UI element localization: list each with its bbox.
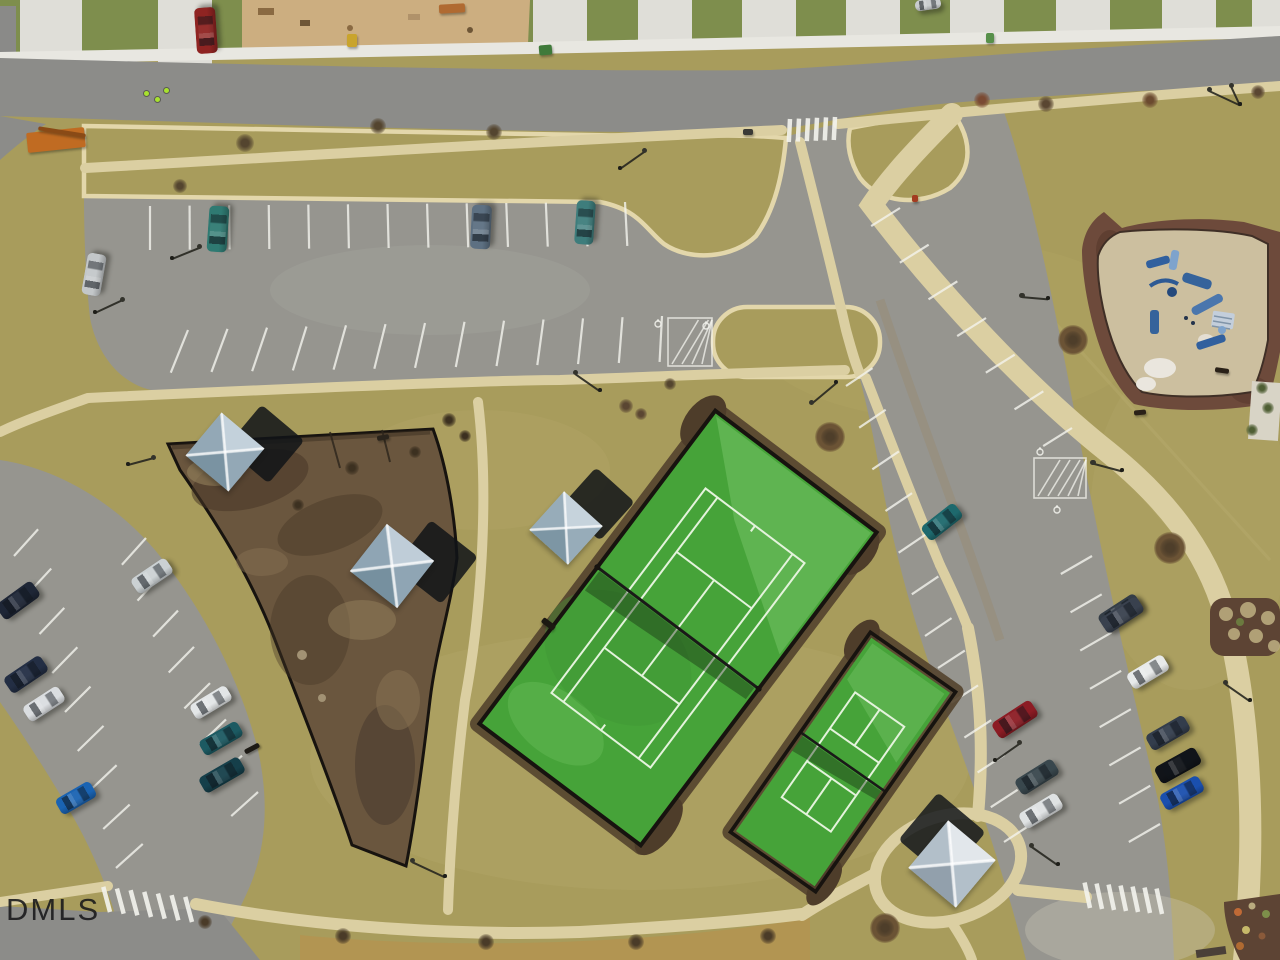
car-glass	[1128, 656, 1168, 688]
slate-car	[1144, 714, 1191, 752]
car-glass	[132, 560, 172, 593]
car-glass	[923, 505, 962, 540]
lamp-base	[1046, 296, 1050, 300]
car-glass	[200, 758, 244, 791]
lamp-base	[993, 758, 997, 762]
bare-tree	[173, 179, 187, 193]
white-sedan	[189, 684, 234, 720]
bare-tree	[198, 915, 212, 929]
lamp-base	[443, 874, 447, 878]
lamp-head	[809, 400, 814, 405]
street-lamp	[811, 382, 837, 404]
lumber-pile	[439, 3, 465, 13]
lamp-base	[618, 166, 622, 170]
bare-tree	[619, 399, 633, 413]
car-glass	[1147, 717, 1189, 749]
scene-objects	[0, 0, 1280, 960]
car-glass	[916, 0, 941, 10]
bare-tree	[1246, 424, 1258, 436]
car-glass	[84, 254, 105, 295]
white-sedan	[21, 685, 66, 723]
silver-car	[130, 557, 175, 595]
lamp-head	[120, 297, 125, 302]
bare-tree	[664, 378, 676, 390]
lamp-base	[1238, 102, 1242, 106]
car-glass	[993, 701, 1036, 736]
white-car	[1018, 792, 1065, 830]
bare-tree	[1142, 92, 1158, 108]
bare-tree	[1256, 382, 1268, 394]
construction-worker	[164, 88, 169, 93]
street-lamp	[412, 861, 446, 878]
car-glass	[209, 207, 227, 250]
bare-tree	[1160, 538, 1180, 558]
lamp-head	[1017, 740, 1022, 745]
street-lamp	[1031, 846, 1059, 866]
car-glass	[1016, 760, 1058, 793]
construction-worker	[144, 91, 149, 96]
bare-tree	[974, 92, 990, 108]
bare-tree	[635, 408, 647, 420]
gray-green-suv	[1014, 758, 1061, 797]
lamp-base	[1056, 862, 1060, 866]
bench	[1215, 367, 1230, 374]
porta-potty	[347, 34, 357, 47]
bare-tree	[292, 499, 304, 511]
street-lamp	[1022, 296, 1048, 301]
bare-tree	[335, 928, 351, 944]
lamp-head	[197, 244, 202, 249]
bare-tree	[478, 934, 494, 950]
street-lamp	[1093, 462, 1123, 472]
bare-tree	[1064, 331, 1082, 349]
street-lamp	[172, 247, 201, 260]
dark-teal-car	[198, 720, 245, 757]
dark-blue-suv	[2, 654, 49, 694]
bright-blue-car	[54, 780, 98, 816]
bare-tree	[345, 461, 359, 475]
street-lamp	[94, 299, 122, 314]
lamp-base	[1248, 698, 1252, 702]
slate-suv	[470, 205, 492, 250]
lamp-head	[151, 455, 156, 460]
bare-tree	[1251, 85, 1265, 99]
street-lamp	[575, 373, 601, 392]
lamp-base	[1120, 468, 1124, 472]
lamp-head	[1207, 87, 1212, 92]
bin	[986, 33, 994, 43]
lamp-head	[1090, 460, 1095, 465]
aerial-photo: DMLS	[0, 0, 1280, 960]
car-glass	[1101, 598, 1142, 632]
bare-tree	[459, 430, 471, 442]
bench	[1134, 409, 1146, 415]
bare-tree	[821, 428, 839, 446]
car-glass	[5, 657, 47, 692]
dog-park-gate	[377, 433, 390, 440]
dark-teal-suv	[198, 756, 247, 795]
red-pickup-truck	[194, 6, 218, 53]
bare-tree	[409, 446, 421, 458]
dark-navy-suv	[0, 579, 41, 620]
street-lamp	[619, 151, 645, 170]
car-glass	[191, 687, 231, 718]
car-glass	[576, 201, 593, 242]
lamp-base	[170, 256, 174, 260]
silver-car	[914, 0, 941, 11]
white-car	[1125, 653, 1170, 690]
car-glass	[197, 8, 216, 51]
bare-tree	[236, 134, 254, 152]
bare-tree	[760, 928, 776, 944]
lamp-head	[1019, 293, 1024, 298]
lamp-base	[93, 310, 97, 314]
bare-tree	[370, 118, 386, 134]
dark-red-car	[991, 699, 1040, 740]
bare-tree	[876, 919, 894, 937]
construction-worker	[155, 97, 160, 102]
car-glass	[57, 783, 96, 813]
bench	[244, 742, 260, 754]
bare-tree	[442, 413, 456, 427]
car-glass	[472, 206, 489, 247]
teal-white-pickup	[206, 205, 229, 252]
lamp-base	[598, 388, 602, 392]
street-lamp	[128, 457, 154, 466]
lamp-base	[834, 380, 838, 384]
car-glass	[0, 582, 39, 618]
court-gate	[540, 617, 556, 631]
teal-sedan	[920, 502, 964, 542]
dumpster	[538, 44, 552, 55]
lamp-base	[126, 462, 130, 466]
teal-car	[574, 199, 596, 244]
lamp-head	[642, 148, 647, 153]
bare-tree	[1038, 96, 1054, 112]
bare-tree	[1262, 402, 1274, 414]
car-glass	[200, 722, 242, 753]
fire-hydrant	[912, 195, 918, 202]
bare-tree	[486, 124, 502, 140]
street-lamp	[994, 743, 1020, 762]
watermark: DMLS	[6, 892, 100, 928]
silver-car	[81, 252, 107, 297]
car-glass	[1020, 795, 1062, 828]
bare-tree	[628, 934, 644, 950]
street-lamp	[1225, 683, 1251, 702]
storm-drain	[743, 129, 753, 135]
car-glass	[24, 688, 64, 721]
